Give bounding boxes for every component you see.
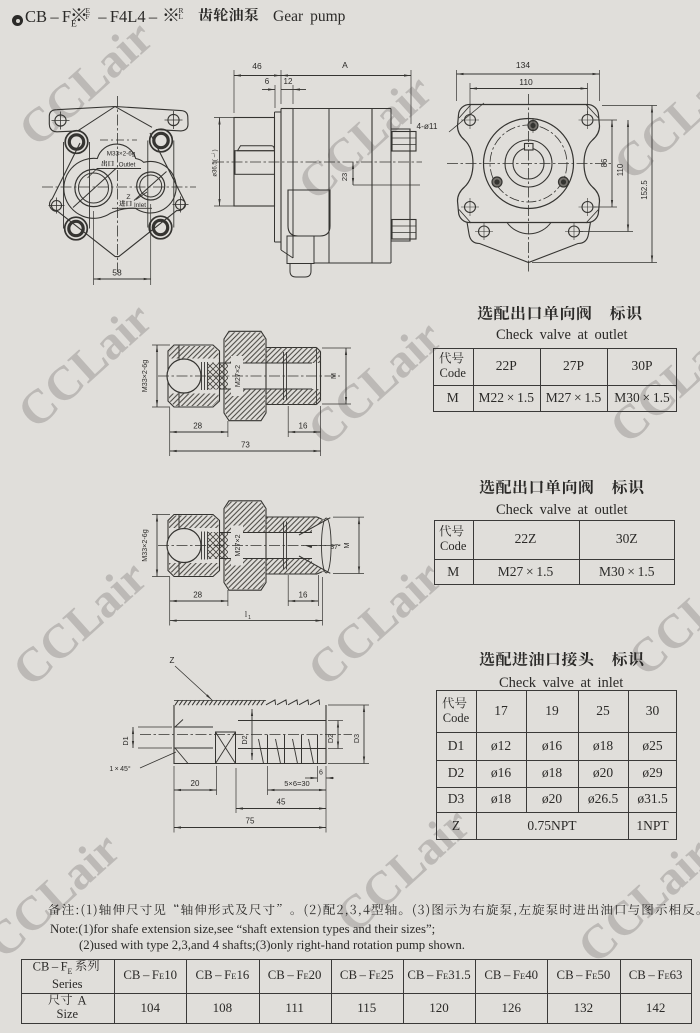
svg-text:D1: D1 bbox=[121, 736, 130, 745]
svg-text:37°: 37° bbox=[330, 543, 341, 551]
svg-text:134: 134 bbox=[516, 60, 530, 70]
svg-text:86: 86 bbox=[600, 159, 609, 168]
svg-text:1: 1 bbox=[248, 615, 251, 621]
svg-text:6: 6 bbox=[319, 770, 323, 777]
svg-text:12: 12 bbox=[284, 77, 293, 86]
svg-text:A: A bbox=[342, 60, 348, 70]
svg-text:D2: D2 bbox=[326, 734, 335, 743]
svg-text:75: 75 bbox=[246, 817, 255, 826]
svg-text:4-ø11: 4-ø11 bbox=[416, 121, 437, 131]
svg-text:Z: Z bbox=[170, 656, 175, 665]
svg-text:ø36.5( −ⁱ ): ø36.5( −ⁱ ) bbox=[211, 149, 219, 176]
svg-text:28: 28 bbox=[193, 422, 202, 431]
svg-text:D3: D3 bbox=[352, 734, 361, 743]
svg-text:110: 110 bbox=[616, 163, 625, 176]
svg-text:6: 6 bbox=[265, 77, 270, 86]
svg-text:M33×2-6g: M33×2-6g bbox=[140, 360, 149, 393]
svg-text:23: 23 bbox=[340, 173, 349, 181]
svg-text:110: 110 bbox=[519, 77, 533, 87]
svg-text:5×6=30: 5×6=30 bbox=[284, 779, 309, 788]
svg-text:M33×2-6g: M33×2-6g bbox=[107, 151, 136, 158]
svg-text:1 × 45°: 1 × 45° bbox=[109, 765, 131, 773]
svg-text:M: M bbox=[329, 373, 338, 379]
svg-text:28: 28 bbox=[193, 591, 202, 600]
svg-text:M: M bbox=[342, 543, 351, 549]
svg-text:152.5: 152.5 bbox=[640, 180, 649, 200]
svg-text:16: 16 bbox=[299, 591, 308, 600]
svg-text:58: 58 bbox=[112, 268, 122, 278]
svg-text:45: 45 bbox=[277, 798, 286, 807]
svg-text:73: 73 bbox=[241, 441, 250, 450]
svg-text:Inlet: Inlet bbox=[134, 202, 146, 209]
svg-text:46: 46 bbox=[252, 61, 262, 71]
svg-text:M33×2-6g: M33×2-6g bbox=[140, 529, 149, 562]
svg-text:Z: Z bbox=[126, 194, 130, 201]
svg-text:20: 20 bbox=[191, 779, 200, 788]
svg-text:Outlet: Outlet bbox=[119, 162, 136, 169]
svg-text:16: 16 bbox=[299, 422, 308, 431]
svg-text:D2: D2 bbox=[240, 735, 249, 744]
